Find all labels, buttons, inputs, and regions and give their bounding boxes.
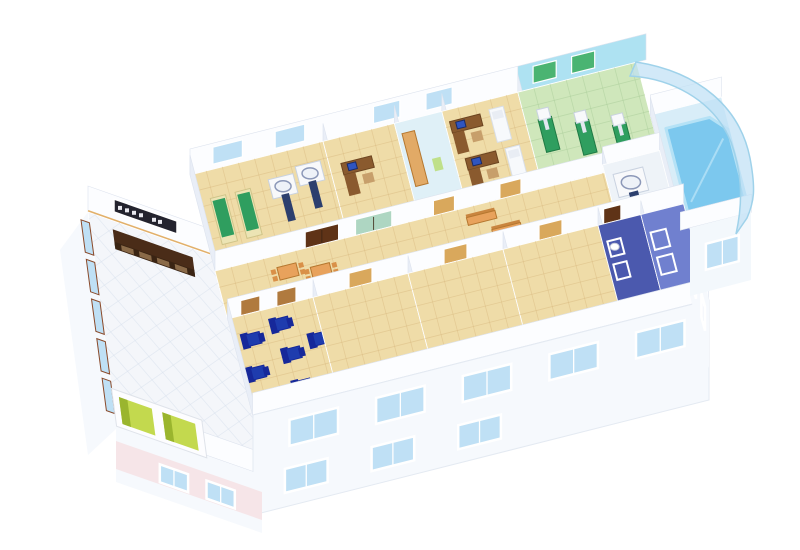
scanner-bore — [621, 176, 640, 189]
hospital-floorplan-3d — [0, 0, 800, 550]
computer-monitor — [347, 162, 357, 171]
sign-glyph — [139, 213, 143, 217]
computer-monitor — [456, 120, 466, 129]
computer-monitor — [471, 157, 481, 166]
toilet — [610, 243, 619, 250]
sign-glyph — [125, 208, 129, 212]
scanner-bore — [275, 181, 291, 192]
scanner-bore — [302, 168, 318, 179]
floorplan-stage — [0, 0, 800, 550]
sign-glyph — [158, 220, 162, 224]
sign-glyph — [118, 206, 122, 210]
sign-glyph — [132, 211, 136, 215]
sign-glyph — [152, 218, 156, 222]
